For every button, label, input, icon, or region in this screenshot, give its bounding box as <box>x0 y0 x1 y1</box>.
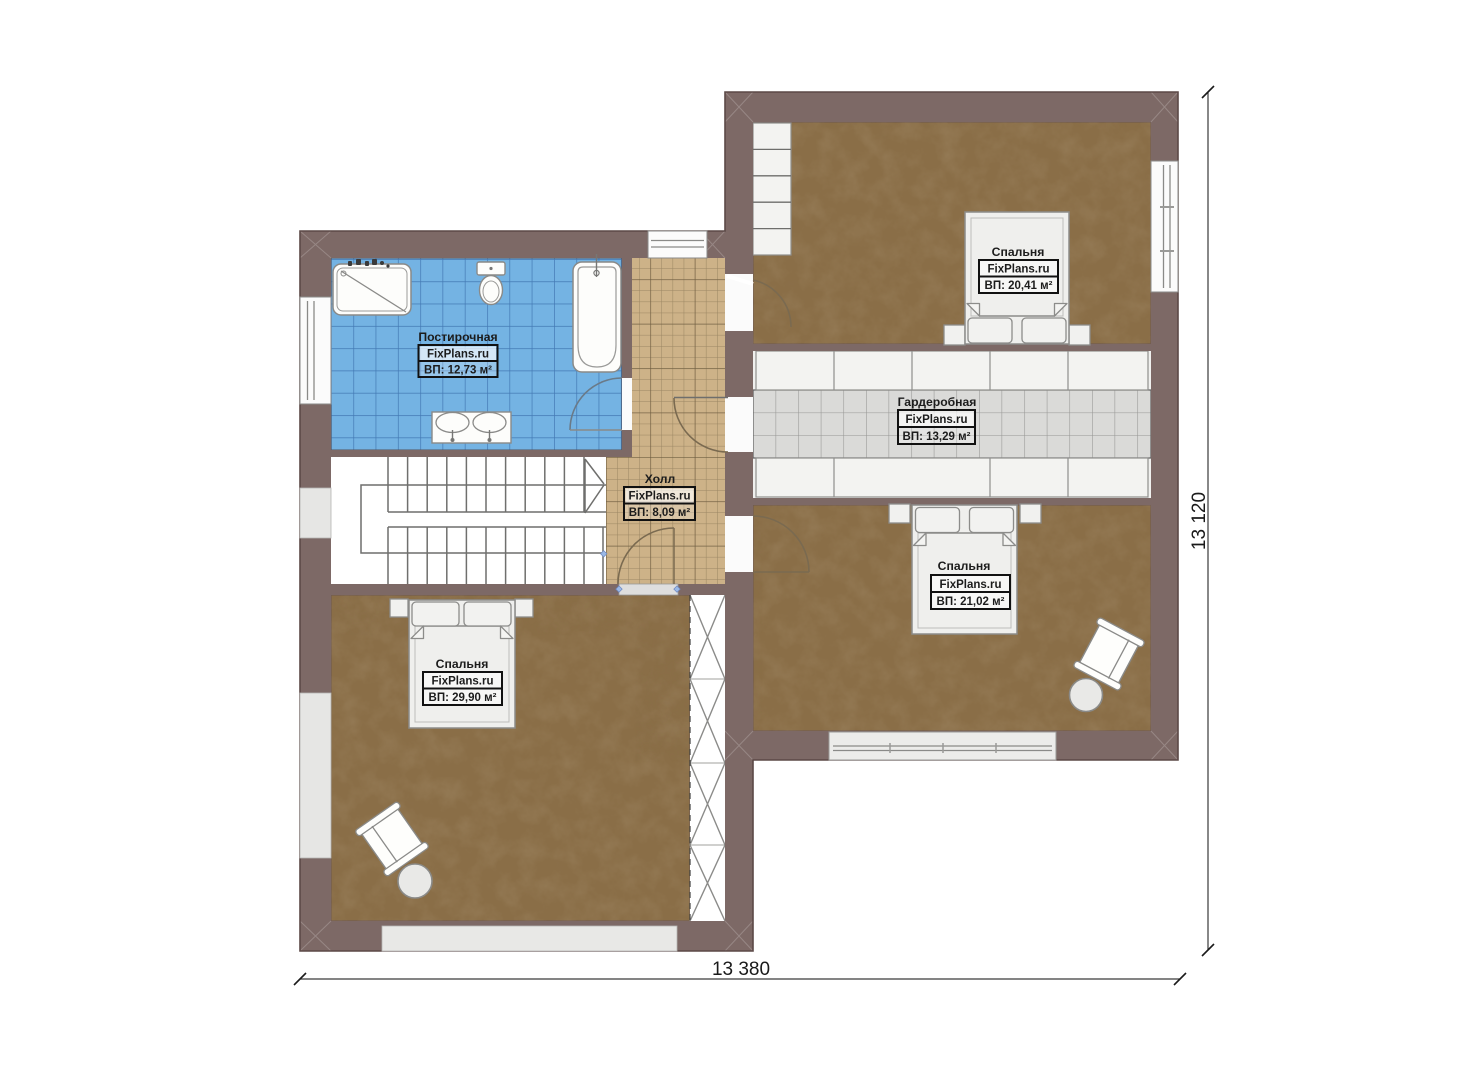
svg-text:Спальня: Спальня <box>938 559 991 573</box>
svg-text:FixPlans.ru: FixPlans.ru <box>629 491 691 503</box>
svg-text:FixPlans.ru: FixPlans.ru <box>427 349 489 361</box>
svg-text:ВП: 13,29 м²: ВП: 13,29 м² <box>903 431 971 443</box>
svg-text:Гардеробная: Гардеробная <box>898 395 977 409</box>
svg-text:ВП: 21,02 м²: ВП: 21,02 м² <box>937 596 1005 608</box>
svg-text:Холл: Холл <box>645 472 676 486</box>
svg-text:FixPlans.ru: FixPlans.ru <box>432 676 494 688</box>
svg-text:FixPlans.ru: FixPlans.ru <box>988 264 1050 276</box>
svg-text:ВП: 8,09 м²: ВП: 8,09 м² <box>629 507 691 519</box>
svg-text:13 120: 13 120 <box>1189 492 1210 550</box>
svg-text:Спальня: Спальня <box>436 657 489 671</box>
svg-text:13 380: 13 380 <box>712 959 770 980</box>
svg-text:Постирочная: Постирочная <box>418 330 497 344</box>
svg-text:ВП: 20,41 м²: ВП: 20,41 м² <box>985 280 1053 292</box>
svg-text:ВП: 12,73 м²: ВП: 12,73 м² <box>424 365 492 377</box>
svg-text:Спальня: Спальня <box>992 245 1045 259</box>
svg-text:FixPlans.ru: FixPlans.ru <box>940 579 1002 591</box>
svg-text:ВП: 29,90 м²: ВП: 29,90 м² <box>429 692 497 704</box>
svg-text:FixPlans.ru: FixPlans.ru <box>906 414 968 426</box>
